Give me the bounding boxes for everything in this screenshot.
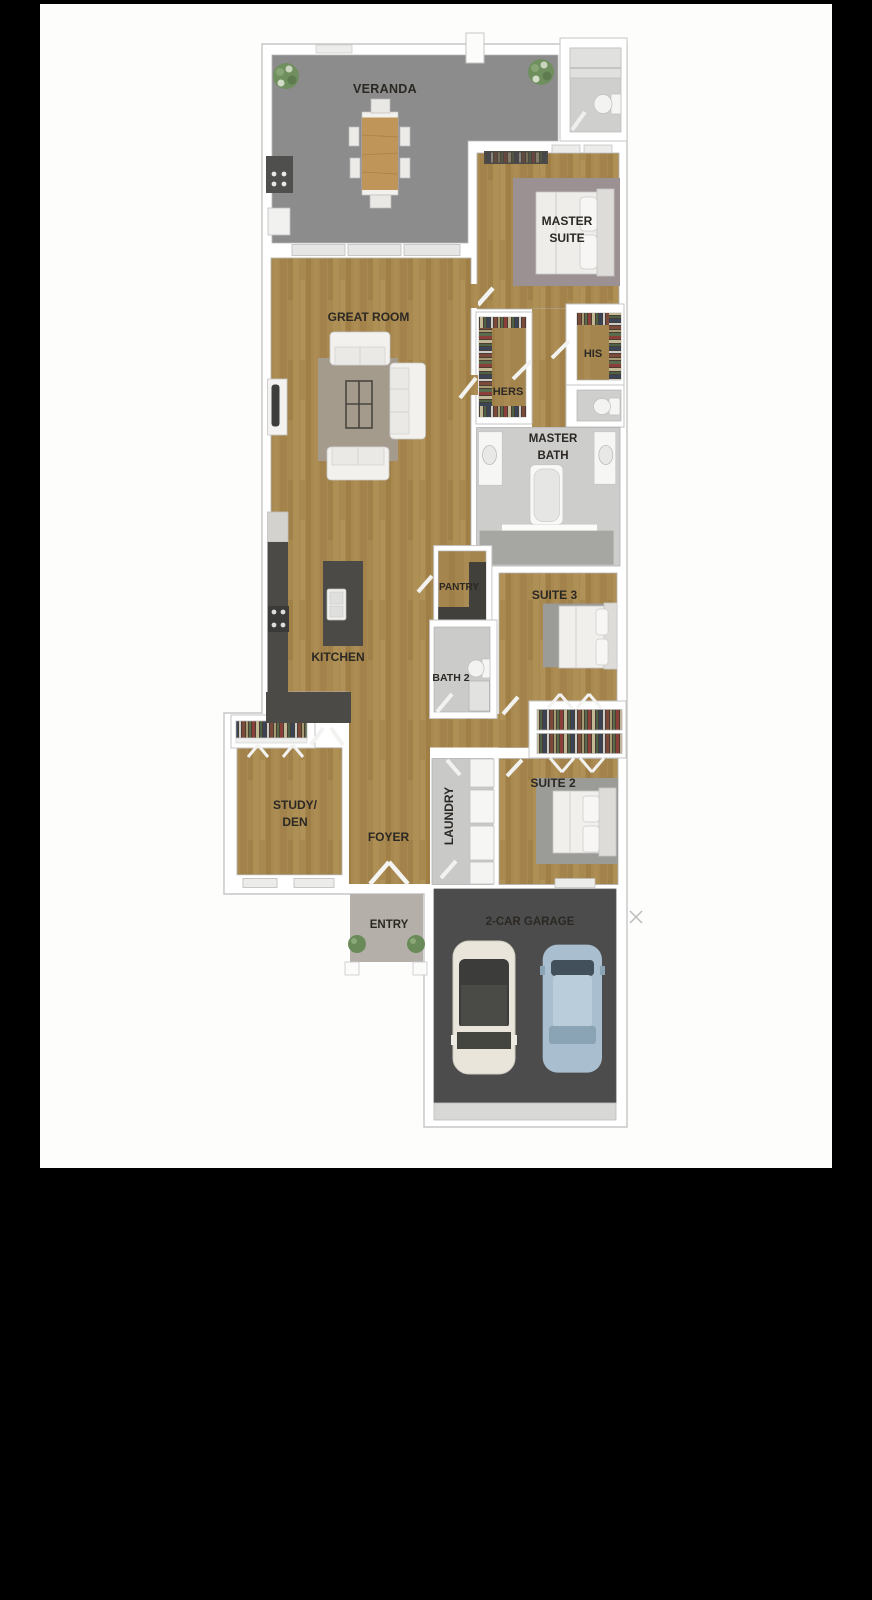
- svg-text:GREAT ROOM: GREAT ROOM: [328, 310, 410, 324]
- svg-text:SUITE 2: SUITE 2: [530, 776, 576, 790]
- svg-text:SUITE 3: SUITE 3: [532, 588, 578, 602]
- svg-text:MASTER: MASTER: [529, 433, 578, 445]
- svg-text:STUDY/: STUDY/: [273, 798, 318, 812]
- svg-text:ENTRY: ENTRY: [370, 919, 409, 931]
- svg-text:HIS: HIS: [584, 348, 602, 360]
- svg-text:PANTRY: PANTRY: [439, 582, 479, 593]
- svg-text:VERANDA: VERANDA: [353, 82, 417, 96]
- svg-text:BATH 2: BATH 2: [432, 672, 469, 684]
- svg-text:KITCHEN: KITCHEN: [311, 650, 364, 664]
- svg-text:DEN: DEN: [282, 815, 307, 829]
- svg-text:BATH: BATH: [537, 450, 568, 462]
- svg-text:FOYER: FOYER: [368, 830, 410, 844]
- svg-text:2-CAR GARAGE: 2-CAR GARAGE: [486, 916, 575, 928]
- svg-text:MASTER: MASTER: [542, 214, 593, 228]
- svg-text:SUITE: SUITE: [549, 231, 584, 245]
- svg-text:HERS: HERS: [493, 386, 524, 398]
- svg-text:LAUNDRY: LAUNDRY: [442, 787, 456, 845]
